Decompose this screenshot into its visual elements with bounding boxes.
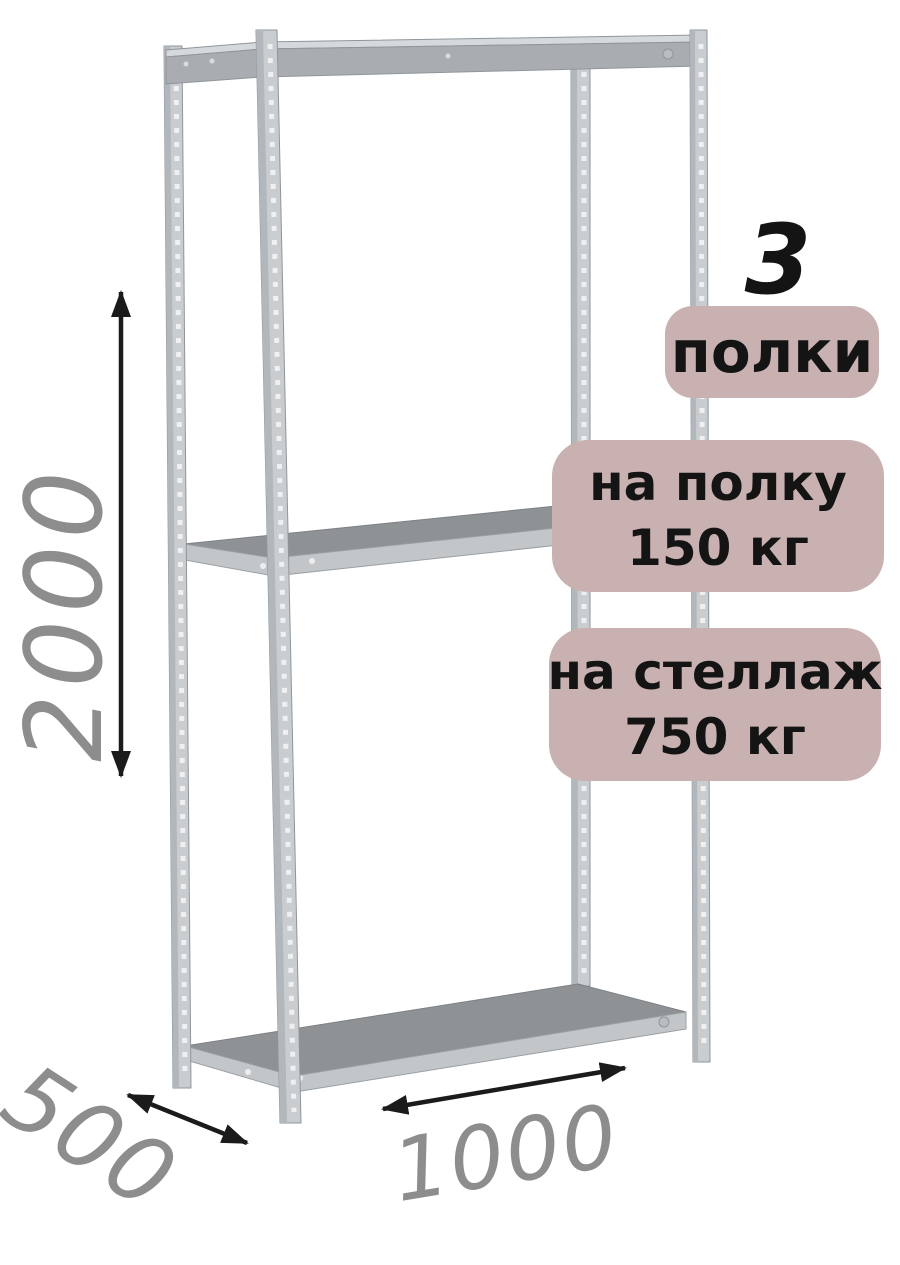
- bolt: [184, 62, 189, 67]
- per-rack-load-badge: на стеллаж 750 кг: [549, 628, 881, 781]
- per-rack-load-line1: на стеллаж: [548, 640, 883, 705]
- shelf-count-number: 3: [718, 212, 838, 308]
- bolt: [210, 59, 215, 64]
- post-front-left: [256, 30, 301, 1123]
- per-shelf-load-line2: 150 кг: [627, 516, 809, 581]
- bolt: [659, 1017, 669, 1027]
- bolt: [663, 49, 673, 59]
- per-shelf-load-line1: на полку: [589, 451, 847, 516]
- shelf-count-badge: полки: [665, 306, 879, 398]
- product-image: 2000 500 1000 3 полки на полку 150 кг на…: [0, 0, 900, 1200]
- bolt: [260, 563, 266, 569]
- bottom-shelf: [185, 984, 686, 1092]
- per-rack-load-line2: 750 кг: [624, 705, 806, 770]
- top-shelf: [166, 35, 701, 84]
- bolt: [245, 1069, 251, 1075]
- bolt: [309, 558, 315, 564]
- per-shelf-load-badge: на полку 150 кг: [552, 440, 884, 592]
- post-back-left: [164, 46, 191, 1088]
- height-dimension-label: 2000: [9, 403, 119, 823]
- bolt: [446, 54, 451, 59]
- shelf-count-label: полки: [671, 318, 873, 386]
- rack-illustration: [0, 0, 900, 1200]
